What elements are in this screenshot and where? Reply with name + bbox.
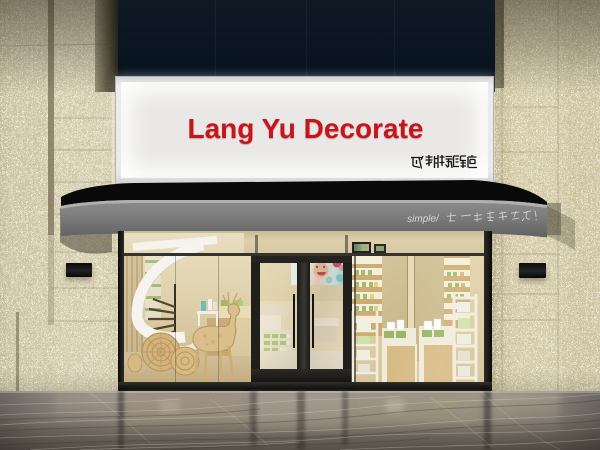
svg-text:simple/: simple/ [407,213,440,225]
